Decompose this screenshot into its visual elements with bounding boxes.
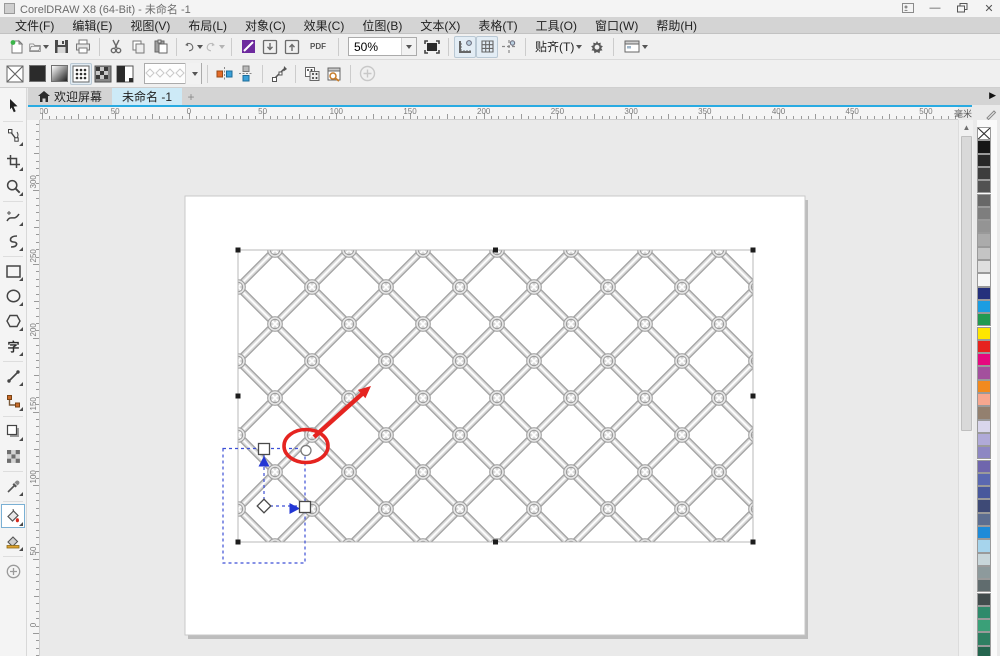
flyout-corner-icon — [19, 222, 23, 226]
options-button[interactable] — [586, 36, 608, 58]
ruler-tick — [462, 116, 463, 119]
ruler-tick — [49, 116, 50, 119]
ruler-tick — [36, 537, 39, 538]
ruler-tick — [771, 116, 772, 119]
scroll-up-icon[interactable]: ▲ — [959, 120, 974, 134]
edit-fill-button[interactable] — [323, 63, 345, 85]
ruler-tick — [742, 114, 743, 119]
color-swatch[interactable] — [977, 499, 991, 512]
ruler-tick — [373, 114, 374, 119]
ruler-tick — [948, 116, 949, 119]
v-ruler-label: 0 — [29, 619, 38, 632]
menu-item-6[interactable]: 位图(B) — [353, 16, 411, 35]
ruler-tick — [36, 603, 39, 604]
h-ruler-label: 400 — [772, 107, 785, 116]
ruler-tick — [425, 116, 426, 119]
ruler-tick — [71, 116, 72, 119]
ruler-tick — [565, 116, 566, 119]
ruler-tick — [64, 116, 65, 119]
color-swatch[interactable] — [977, 233, 991, 246]
menu-item-5[interactable]: 效果(C) — [295, 16, 354, 35]
toolbox-separator — [3, 201, 23, 202]
ruler-tick — [454, 116, 455, 119]
ruler-tick — [211, 116, 212, 119]
menu-bar: 文件(F)编辑(E)视图(V)布局(L)对象(C)效果(C)位图(B)文本(X)… — [0, 17, 1000, 34]
color-swatch[interactable] — [977, 207, 991, 220]
show-rulers-toggle[interactable] — [454, 36, 476, 58]
color-swatch[interactable] — [977, 140, 991, 153]
h-ruler-label: 200 — [477, 107, 490, 116]
scrollbar-thumb[interactable] — [961, 136, 972, 431]
menu-item-0[interactable]: 文件(F) — [6, 16, 63, 35]
ruler-tick — [528, 116, 529, 119]
redo-button — [204, 36, 226, 58]
ruler-tick — [447, 114, 448, 119]
flyout-corner-icon — [19, 142, 23, 146]
publish-pdf-button[interactable]: PDF — [303, 36, 333, 58]
app-icon — [4, 3, 15, 14]
ruler-tick — [36, 205, 39, 206]
ruler-tick — [860, 116, 861, 119]
interface-caret-icon — [642, 45, 648, 49]
ruler-tick — [351, 116, 352, 119]
color-swatch[interactable] — [977, 154, 991, 167]
transform-fill-button[interactable] — [268, 63, 290, 85]
ruler-tick — [36, 508, 39, 509]
ruler-tick — [874, 116, 875, 119]
color-swatch[interactable] — [977, 327, 991, 340]
ruler-tick — [344, 116, 345, 119]
vertical-ruler[interactable]: 300250200150100500 — [27, 120, 40, 656]
ruler-tick — [638, 116, 639, 119]
color-swatch[interactable] — [977, 313, 991, 326]
toolbox-separator — [3, 556, 23, 557]
swatch-no-color[interactable] — [977, 127, 991, 140]
ruler-tick — [34, 227, 39, 228]
color-swatch[interactable] — [977, 167, 991, 180]
ruler-tick — [329, 116, 330, 119]
color-swatch[interactable] — [977, 220, 991, 233]
tab-welcome-screen[interactable]: 欢迎屏幕 — [28, 88, 112, 105]
ruler-tick — [167, 116, 168, 119]
two-point-line-tool[interactable] — [1, 364, 25, 388]
h-ruler-label: 50 — [258, 107, 267, 116]
ruler-tick — [521, 114, 522, 119]
ruler-tick — [36, 316, 39, 317]
h-ruler-label: 0 — [187, 107, 191, 116]
ruler-tick — [36, 574, 39, 575]
vector-pattern-fill-button[interactable] — [70, 63, 92, 85]
horizontal-ruler[interactable]: 10050050100150200250300350400450500 — [40, 107, 958, 120]
ruler-tick — [933, 116, 934, 119]
color-swatch[interactable] — [977, 393, 991, 406]
ruler-tick — [36, 648, 39, 649]
ruler-tick — [36, 530, 39, 531]
new-document-button[interactable] — [6, 36, 28, 58]
ruler-tick — [904, 116, 905, 119]
color-swatch[interactable] — [977, 287, 991, 300]
ruler-tick — [911, 116, 912, 119]
color-swatch[interactable] — [977, 446, 991, 459]
crop-tool[interactable] — [1, 149, 25, 173]
color-swatch[interactable] — [977, 300, 991, 313]
ruler-tick — [381, 116, 382, 119]
color-swatch[interactable] — [977, 619, 991, 632]
tab-welcome-label: 欢迎屏幕 — [54, 88, 102, 105]
flyout-corner-icon — [19, 352, 23, 356]
open-button[interactable] — [28, 36, 50, 58]
v-ruler-label: 50 — [29, 545, 38, 558]
flyout-corner-icon — [19, 522, 23, 526]
ruler-tick — [33, 485, 39, 486]
color-swatch[interactable] — [977, 539, 991, 552]
ruler-tick — [36, 382, 39, 383]
ruler-tick — [683, 116, 684, 119]
ruler-tick — [36, 360, 39, 361]
ruler-tick — [36, 426, 39, 427]
color-swatch[interactable] — [977, 526, 991, 539]
ellipse-tool[interactable] — [1, 284, 25, 308]
tab-scroll-right-icon[interactable]: ▶ — [989, 90, 996, 101]
save-button[interactable] — [50, 36, 72, 58]
menu-item-11[interactable]: 帮助(H) — [647, 16, 706, 35]
color-swatch[interactable] — [977, 273, 991, 286]
freehand-tool[interactable] — [1, 204, 25, 228]
ruler-tick — [594, 114, 595, 119]
ruler-tick — [36, 419, 39, 420]
ruler-tick — [417, 116, 418, 119]
ruler-tick — [78, 114, 79, 119]
ruler-tick — [358, 116, 359, 119]
flyout-corner-icon — [19, 277, 23, 281]
color-swatch[interactable] — [977, 340, 991, 353]
color-swatch[interactable] — [977, 486, 991, 499]
ruler-tick — [624, 116, 625, 119]
minimize-button[interactable]: — — [926, 1, 944, 15]
color-swatch[interactable] — [977, 366, 991, 379]
ruler-tick — [34, 596, 39, 597]
ruler-tick — [34, 522, 39, 523]
v-ruler-label: 100 — [29, 471, 38, 484]
ruler-tick — [36, 434, 39, 435]
color-swatch[interactable] — [977, 579, 991, 592]
color-swatch[interactable] — [977, 194, 991, 207]
color-swatch[interactable] — [977, 180, 991, 193]
ruler-tick — [801, 116, 802, 119]
show-grid-toggle[interactable] — [476, 36, 498, 58]
color-swatch[interactable] — [977, 380, 991, 393]
copy-fill-button[interactable] — [301, 63, 323, 85]
color-swatch[interactable] — [977, 460, 991, 473]
color-swatch[interactable] — [977, 513, 991, 526]
tab-document[interactable]: 未命名 -1 — [112, 88, 182, 105]
ruler-tick — [36, 168, 39, 169]
color-swatch[interactable] — [977, 406, 991, 419]
ruler-tick — [867, 116, 868, 119]
ruler-tick — [764, 116, 765, 119]
shape-tool[interactable] — [1, 124, 25, 148]
menu-item-2[interactable]: 视图(V) — [121, 16, 179, 35]
import-button[interactable] — [259, 36, 281, 58]
color-swatch[interactable] — [977, 247, 991, 260]
rectangle-tool[interactable] — [1, 259, 25, 283]
pick-tool[interactable] — [1, 94, 25, 118]
zoom-tool[interactable] — [1, 174, 25, 198]
ruler-tick — [845, 116, 846, 119]
ruler-tick — [36, 161, 39, 162]
snap-to-label: 贴齐(T) — [535, 38, 574, 55]
ruler-tick — [307, 116, 308, 119]
fullscreen-preview-button[interactable] — [421, 36, 443, 58]
ruler-tick — [889, 114, 890, 119]
mirror-tiles-vertical-button[interactable] — [235, 63, 257, 85]
ruler-tick — [248, 116, 249, 119]
smart-fill-tool[interactable] — [1, 529, 25, 553]
fountain-fill-button[interactable] — [48, 63, 70, 85]
edit-ruler-icon[interactable] — [985, 108, 997, 120]
toolbox-separator — [3, 361, 23, 362]
flyout-corner-icon — [19, 492, 23, 496]
mirror-tiles-horizontal-button[interactable] — [213, 63, 235, 85]
ruler-tick — [882, 116, 883, 119]
ruler-tick — [36, 286, 39, 287]
ruler-tick — [432, 116, 433, 119]
ruler-tick — [36, 456, 39, 457]
h-ruler-label: 350 — [698, 107, 711, 116]
interactive-fill-tool[interactable] — [1, 504, 25, 528]
ruler-tick — [498, 116, 499, 119]
color-swatch[interactable] — [977, 473, 991, 486]
ruler-tick — [33, 190, 39, 191]
ruler-tick — [218, 116, 219, 119]
polygon-tool[interactable] — [1, 309, 25, 333]
ruler-tick — [690, 116, 691, 119]
new-tab-button[interactable]: + — [182, 88, 200, 105]
color-swatch[interactable] — [977, 566, 991, 579]
document-tab-bar: 欢迎屏幕 未命名 -1 + ▶ — [28, 88, 1000, 105]
ruler-tick — [36, 500, 39, 501]
ruler-tick — [285, 116, 286, 119]
ruler-tick — [668, 114, 669, 119]
property-bar — [0, 60, 1000, 88]
toolbox-separator — [3, 256, 23, 257]
ruler-tick — [145, 116, 146, 119]
color-swatch[interactable] — [977, 433, 991, 446]
toolbox: 字 — [0, 88, 27, 656]
fill-rotate-handle[interactable] — [301, 446, 311, 456]
ruler-tick — [56, 116, 57, 119]
vertical-scrollbar[interactable]: ▲ — [958, 120, 973, 656]
toolbox-separator — [3, 471, 23, 472]
ruler-tick — [749, 116, 750, 119]
ruler-tick — [756, 116, 757, 119]
ruler-tick — [439, 116, 440, 119]
curve-tool[interactable] — [1, 229, 25, 253]
v-ruler-label: 250 — [29, 250, 38, 263]
ruler-tick — [36, 124, 39, 125]
ruler-tick — [33, 338, 39, 339]
flyout-corner-icon — [19, 247, 23, 251]
ruler-tick — [33, 264, 39, 265]
text-tool[interactable]: 字 — [1, 334, 25, 358]
ruler-tick — [36, 345, 39, 346]
transparency-tool[interactable] — [1, 444, 25, 468]
add-preset-button — [356, 63, 378, 85]
drop-shadow-tool[interactable] — [1, 419, 25, 443]
flyout-corner-icon — [19, 167, 23, 171]
ruler-tick — [240, 116, 241, 119]
ruler-tick — [93, 116, 94, 119]
ruler-tick — [33, 412, 39, 413]
fill-height-handle[interactable] — [259, 444, 270, 455]
fill-picker-dropdown[interactable] — [144, 63, 202, 84]
ruler-tick — [36, 234, 39, 235]
ruler-tick — [543, 116, 544, 119]
ruler-tick — [314, 116, 315, 119]
redo-caret-icon — [219, 45, 225, 49]
ruler-tick — [36, 640, 39, 641]
application-launcher-button[interactable] — [237, 36, 259, 58]
ruler-tick — [270, 116, 271, 119]
ruler-tick — [159, 116, 160, 119]
h-ruler-label: 100 — [40, 107, 48, 116]
paste-button[interactable] — [149, 36, 171, 58]
ruler-tick — [322, 116, 323, 119]
ruler-tick — [616, 116, 617, 119]
ruler-tick — [34, 449, 39, 450]
show-guidelines-toggle[interactable] — [498, 36, 520, 58]
color-swatch[interactable] — [977, 593, 991, 606]
menu-item-1[interactable]: 编辑(E) — [63, 16, 121, 35]
color-swatch[interactable] — [977, 353, 991, 366]
fill-width-handle[interactable] — [300, 502, 311, 513]
ruler-tick — [815, 114, 816, 119]
color-swatch[interactable] — [977, 606, 991, 619]
ruler-tick — [36, 198, 39, 199]
ruler-tick — [233, 116, 234, 119]
close-button[interactable]: ✕ — [980, 1, 998, 15]
ruler-tick — [182, 116, 183, 119]
color-swatch[interactable] — [977, 553, 991, 566]
no-fill-button[interactable] — [4, 63, 26, 85]
undo-button[interactable] — [182, 36, 204, 58]
menu-item-3[interactable]: 布局(L) — [179, 16, 236, 35]
two-color-pattern-fill-button[interactable] — [114, 63, 136, 85]
export-button[interactable] — [281, 36, 303, 58]
undo-caret-icon[interactable] — [197, 45, 203, 49]
ruler-tick — [602, 116, 603, 119]
ruler-tick — [395, 116, 396, 119]
fence-image[interactable] — [238, 250, 753, 542]
menu-item-8[interactable]: 表格(T) — [469, 16, 526, 35]
flyout-corner-icon — [19, 192, 23, 196]
ruler-tick — [646, 116, 647, 119]
ruler-tick — [34, 153, 39, 154]
color-swatch[interactable] — [977, 420, 991, 433]
color-swatch[interactable] — [977, 260, 991, 273]
drawing-canvas[interactable] — [40, 120, 958, 656]
h-ruler-label: 500 — [919, 107, 932, 116]
menu-item-7[interactable]: 文本(X) — [411, 16, 469, 35]
ruler-tick — [255, 116, 256, 119]
title-bar: CorelDRAW X8 (64-Bit) - 未命名 -1 — ✕ — [0, 0, 1000, 17]
color-swatch[interactable] — [977, 646, 991, 656]
connector-tool[interactable] — [1, 389, 25, 413]
ruler-tick — [292, 116, 293, 119]
ruler-tick — [506, 116, 507, 119]
flyout-corner-icon — [19, 382, 23, 386]
restore-button[interactable] — [953, 1, 971, 15]
ruler-tick — [919, 116, 920, 119]
zoom-level-select[interactable] — [348, 37, 417, 56]
color-swatch[interactable] — [977, 632, 991, 645]
ruler-tick — [36, 146, 39, 147]
zoom-caret-icon[interactable] — [401, 38, 416, 55]
print-button[interactable] — [72, 36, 94, 58]
ruler-tick — [196, 116, 197, 119]
ruler-units-label: 毫米 — [954, 107, 972, 120]
window-title: CorelDRAW X8 (64-Bit) - 未命名 -1 — [20, 1, 191, 17]
ruler-tick — [34, 301, 39, 302]
menu-item-9[interactable]: 工具(O) — [527, 16, 586, 35]
ruler-tick — [941, 116, 942, 119]
ruler-tick — [86, 116, 87, 119]
signin-icon[interactable] — [899, 1, 917, 15]
ruler-tick — [123, 116, 124, 119]
ruler-tick — [580, 116, 581, 119]
zoom-level-input[interactable] — [349, 40, 401, 54]
open-caret-icon[interactable] — [43, 45, 49, 49]
ruler-tick — [33, 633, 39, 634]
fill-picker-caret-icon — [192, 72, 198, 76]
ruler-tick — [697, 116, 698, 119]
color-palette — [977, 120, 997, 656]
ruler-tick — [137, 116, 138, 119]
copy-button[interactable] — [127, 36, 149, 58]
h-ruler-label: 300 — [624, 107, 637, 116]
more-tools[interactable] — [1, 559, 25, 583]
ruler-tick — [712, 116, 713, 119]
h-ruler-label: 450 — [846, 107, 859, 116]
ruler-tick — [36, 367, 39, 368]
svg-text:字: 字 — [7, 339, 19, 354]
ruler-tick — [36, 581, 39, 582]
ruler-tick — [550, 116, 551, 119]
pdf-label: PDF — [310, 43, 326, 51]
v-ruler-label: 300 — [29, 176, 38, 189]
interface-chooser-dropdown[interactable] — [619, 36, 653, 58]
color-eyedropper-tool[interactable] — [1, 474, 25, 498]
menu-item-4[interactable]: 对象(C) — [236, 16, 295, 35]
ruler-tick — [36, 567, 39, 568]
ruler-tick — [830, 116, 831, 119]
snap-to-dropdown[interactable]: 贴齐(T) — [531, 36, 586, 57]
ruler-tick — [36, 611, 39, 612]
menu-item-10[interactable]: 窗口(W) — [586, 16, 647, 35]
ruler-tick — [36, 389, 39, 390]
cut-button[interactable] — [105, 36, 127, 58]
bitmap-pattern-fill-button[interactable] — [92, 63, 114, 85]
ruler-tick — [36, 242, 39, 243]
ruler-tick — [100, 116, 101, 119]
ruler-tick — [36, 441, 39, 442]
uniform-fill-button[interactable] — [26, 63, 48, 85]
ruler-tick — [36, 139, 39, 140]
ruler-tick — [366, 116, 367, 119]
ruler-tick — [609, 116, 610, 119]
ruler-tick — [734, 116, 735, 119]
ruler-tick — [661, 116, 662, 119]
